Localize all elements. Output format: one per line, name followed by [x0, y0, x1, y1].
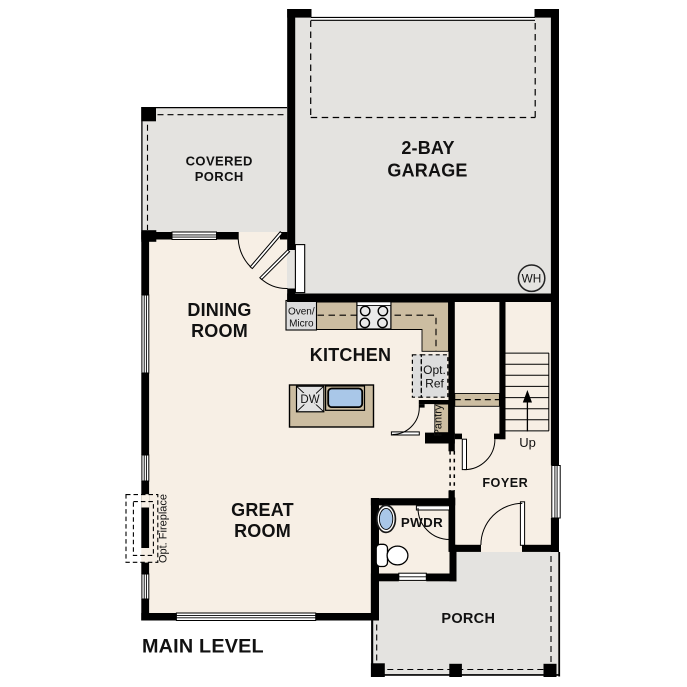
- svg-text:MAIN LEVEL: MAIN LEVEL: [142, 636, 264, 658]
- svg-text:PORCH: PORCH: [195, 169, 244, 184]
- svg-text:COVERED: COVERED: [186, 154, 253, 169]
- svg-text:ROOM: ROOM: [234, 521, 291, 541]
- svg-text:WH: WH: [522, 272, 542, 286]
- svg-text:Opt.: Opt.: [423, 363, 446, 377]
- svg-text:PORCH: PORCH: [441, 611, 495, 627]
- svg-text:KITCHEN: KITCHEN: [310, 345, 391, 365]
- svg-text:FOYER: FOYER: [482, 476, 528, 490]
- svg-text:Pantry: Pantry: [432, 404, 444, 436]
- svg-text:PWDR: PWDR: [401, 515, 443, 530]
- svg-text:2-BAY: 2-BAY: [401, 138, 454, 158]
- svg-text:Ref: Ref: [425, 377, 444, 391]
- svg-text:Oven/: Oven/: [288, 307, 315, 318]
- svg-text:GREAT: GREAT: [231, 500, 294, 520]
- svg-text:Micro: Micro: [289, 318, 314, 329]
- svg-text:DW: DW: [300, 394, 319, 406]
- svg-text:ROOM: ROOM: [191, 321, 248, 341]
- svg-text:Opt. Fireplace: Opt. Fireplace: [158, 494, 170, 563]
- svg-text:Up: Up: [519, 435, 536, 450]
- svg-text:GARAGE: GARAGE: [387, 161, 467, 181]
- svg-text:DINING: DINING: [187, 300, 251, 320]
